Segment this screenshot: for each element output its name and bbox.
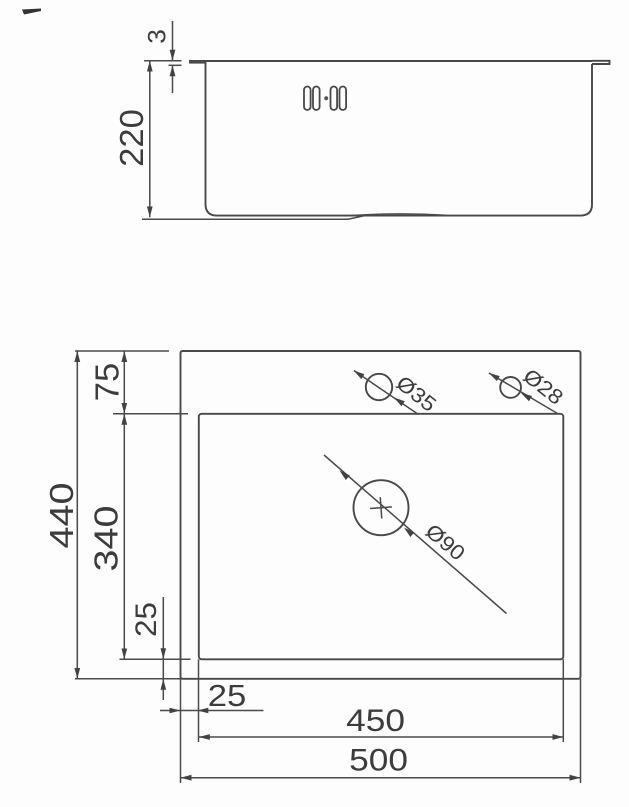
svg-text:220: 220 <box>114 109 151 167</box>
svg-text:450: 450 <box>346 704 405 739</box>
svg-text:340: 340 <box>88 505 125 571</box>
svg-text:500: 500 <box>349 743 408 778</box>
svg-text:3: 3 <box>144 29 171 44</box>
svg-text:25: 25 <box>208 678 247 713</box>
svg-text:25: 25 <box>129 602 163 637</box>
svg-text:440: 440 <box>43 482 80 548</box>
svg-text:Ø28: Ø28 <box>519 364 568 410</box>
svg-text:Ø35: Ø35 <box>392 371 441 417</box>
svg-text:75: 75 <box>89 363 126 402</box>
svg-text:Ø90: Ø90 <box>421 519 470 565</box>
